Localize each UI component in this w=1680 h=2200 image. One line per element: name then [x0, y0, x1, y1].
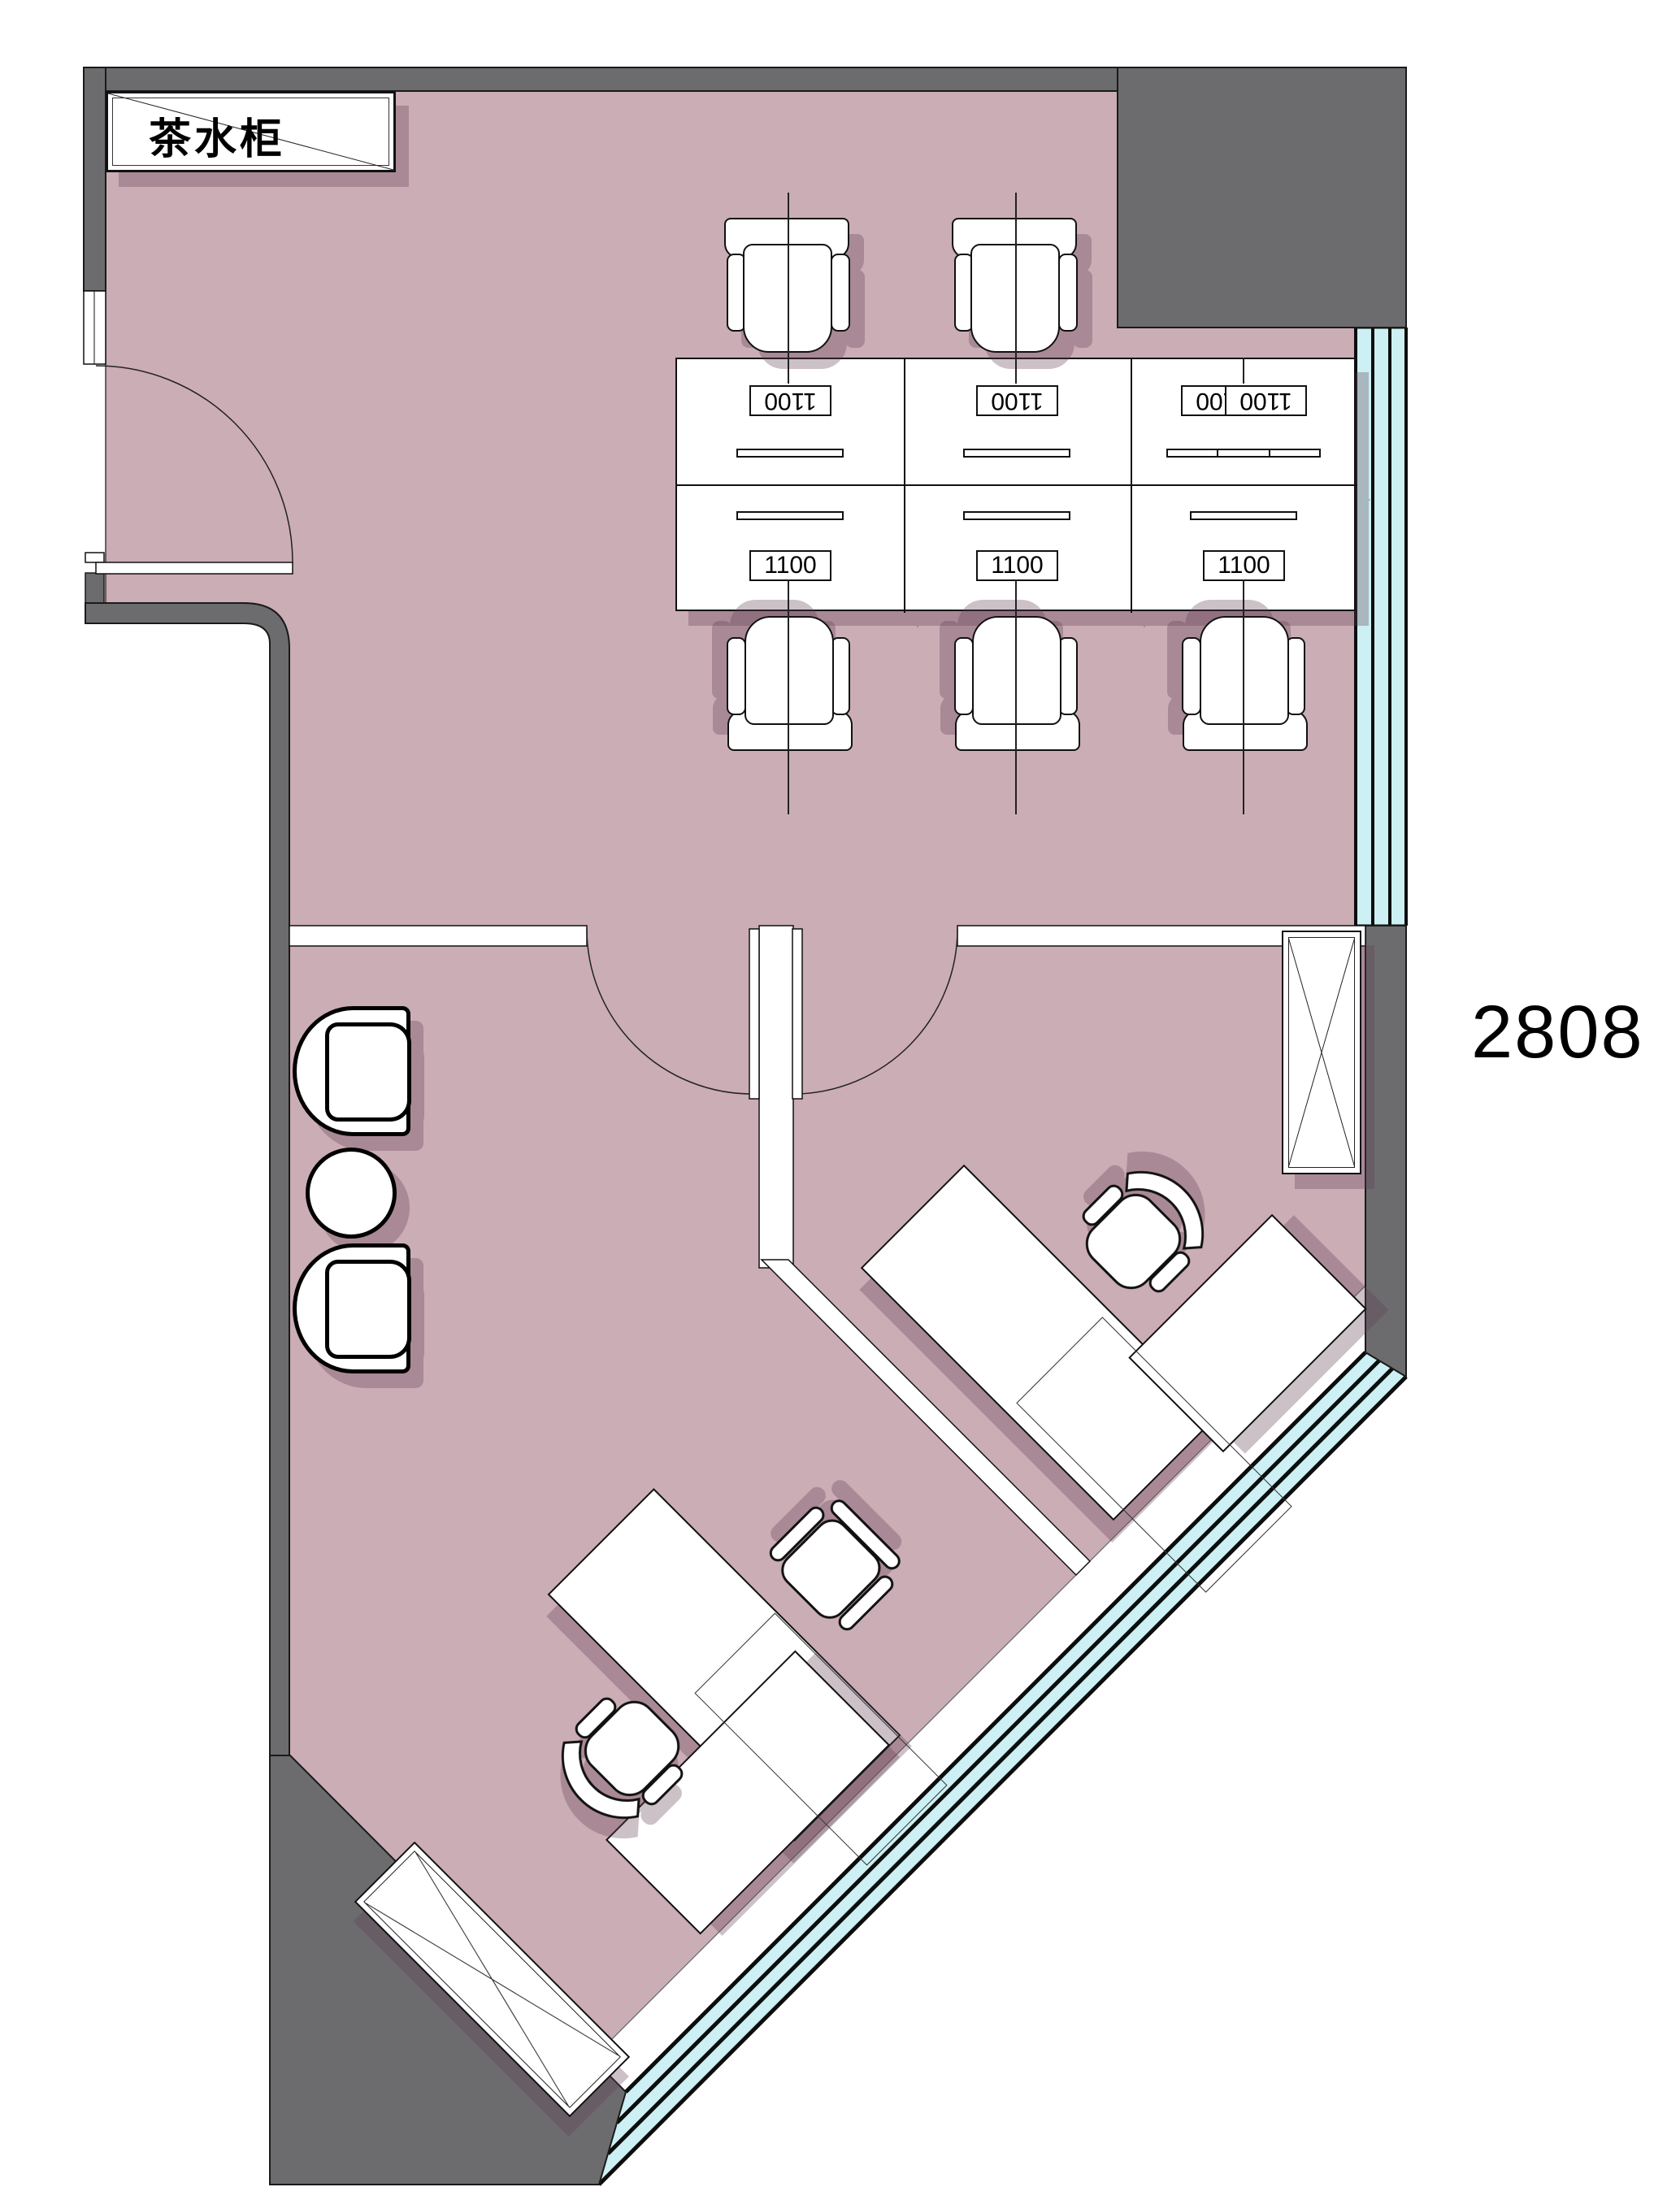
- inner-door-right-leaf: [792, 929, 802, 1099]
- desk-tray-slot: [963, 449, 1070, 458]
- lounge-chair-seat: [325, 1260, 411, 1359]
- round-side-table: [306, 1148, 397, 1239]
- chair-armrest: [1058, 254, 1078, 332]
- workstation-centerline: [1243, 579, 1244, 814]
- chair-armrest: [954, 637, 974, 715]
- desk-size-label: 1100: [749, 550, 831, 581]
- inner-door-left-leaf: [749, 929, 759, 1099]
- desk-size-label-overlap: 1100: [1225, 385, 1307, 416]
- tea-cabinet: 茶水柜: [106, 91, 396, 172]
- entry-door-jamb: [85, 553, 104, 562]
- chair-seat: [972, 616, 1061, 725]
- partition-wall-center: [759, 926, 793, 1268]
- desk-size-text: 1100: [1218, 552, 1270, 579]
- lounge-chair: [293, 1243, 423, 1383]
- desk-size-text: 1100: [991, 388, 1044, 414]
- workstation-centerline: [1015, 193, 1017, 384]
- chair-seat: [1200, 616, 1289, 725]
- wall-left-upper: [84, 67, 106, 291]
- wall-right-lower: [1365, 926, 1406, 1377]
- desk-divider: [904, 359, 905, 613]
- workstation-centerline: [1015, 579, 1017, 814]
- chair-armrest: [831, 254, 850, 332]
- room-number-label: 2808: [1471, 990, 1644, 1075]
- wall-left-lower: [85, 603, 289, 1755]
- chair-armrest: [727, 637, 746, 715]
- wall-top: [84, 67, 1118, 91]
- slot-divider: [1269, 449, 1270, 457]
- wall-top-right-mass: [1118, 67, 1406, 328]
- partition-wall-left: [289, 926, 587, 946]
- desk-divider: [677, 484, 1357, 486]
- slot-divider: [1217, 449, 1218, 457]
- storage-cabinet-x: [1282, 931, 1361, 1174]
- wall-left-stub: [85, 573, 104, 604]
- desk-size-text: 1100: [764, 552, 817, 579]
- desk-size-text: 1100: [1239, 388, 1292, 414]
- desk-tray-slot: [1190, 511, 1297, 520]
- lounge-chair: [293, 1006, 423, 1146]
- desk-size-text: 1100: [991, 552, 1044, 579]
- workstation-centerline: [788, 193, 789, 384]
- desk-size-label: 1100: [976, 385, 1058, 416]
- floor-plan: 茶水柜 1100 1100 1100 1100 1100 1100 1100: [0, 0, 1680, 2200]
- workstation-centerline: [1243, 358, 1244, 384]
- chair-seat: [744, 616, 834, 725]
- desk-size-label: 1100: [1203, 550, 1285, 581]
- lounge-chair-seat: [325, 1022, 411, 1122]
- desk-tray-slot: [963, 511, 1070, 520]
- desk-tray-slot: [1166, 449, 1321, 458]
- workstation-desk-block: 1100 1100 1100 1100 1100 1100 1100: [675, 358, 1356, 611]
- window-right: [1356, 328, 1406, 926]
- entry-door-leaf: [96, 562, 293, 574]
- cabinet-x-cross: [1288, 937, 1355, 1168]
- desk-size-label: 1100: [976, 550, 1058, 581]
- desk-size-label: 1100: [749, 385, 831, 416]
- desk-divider: [1131, 359, 1132, 613]
- tea-cabinet-label: 茶水柜: [149, 105, 285, 166]
- chair-armrest: [1182, 637, 1201, 715]
- desk-tray-slot: [736, 449, 844, 458]
- desk-size-text: 1100: [764, 388, 817, 414]
- desk-tray-slot: [736, 511, 844, 520]
- workstation-centerline: [788, 579, 789, 814]
